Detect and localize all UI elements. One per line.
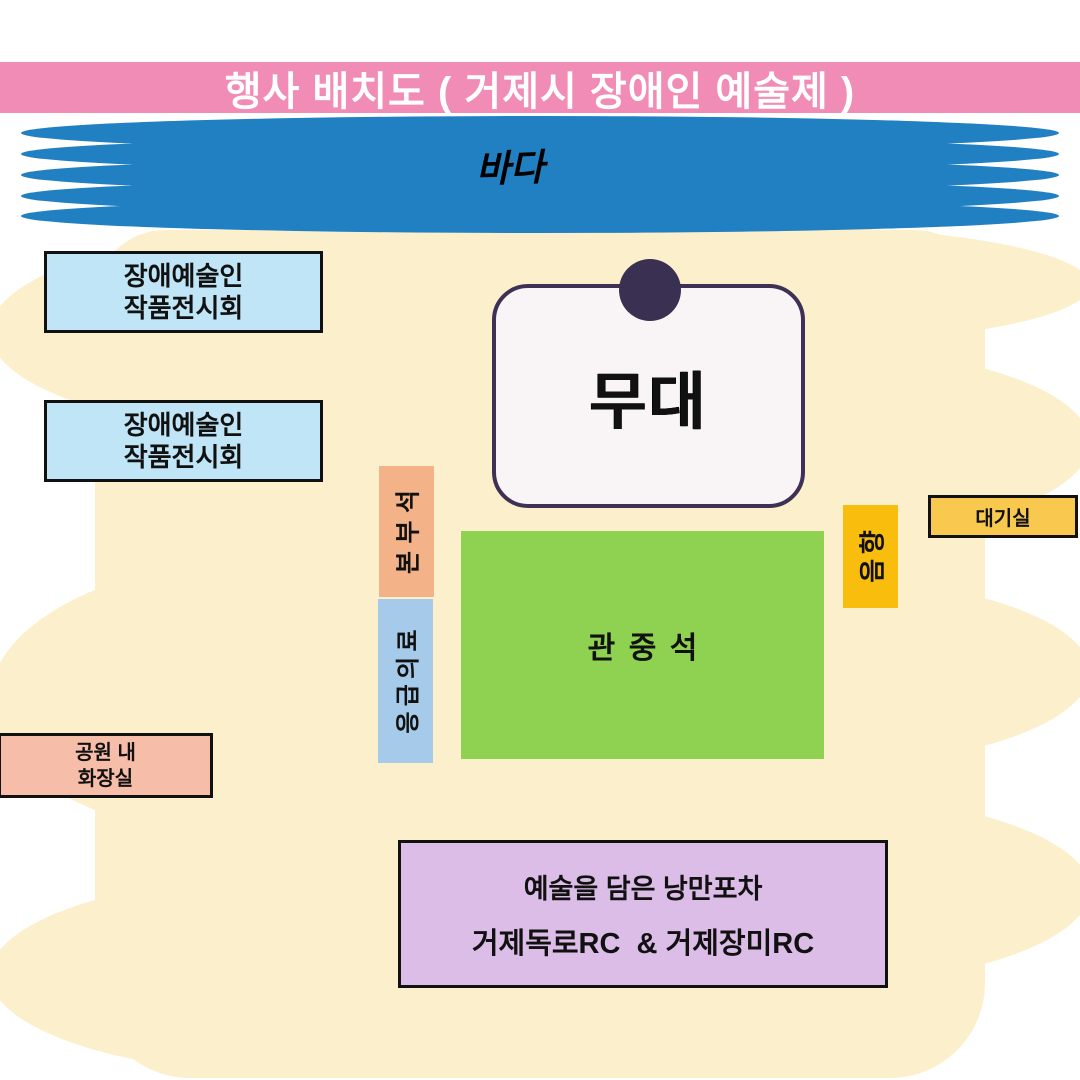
- zone-park-restroom: 공원 내 화장실: [0, 733, 213, 798]
- first-aid-label: 응급의료: [388, 624, 423, 739]
- poster-title: 행사 배치도 ( 거제시 장애인 예술제 ): [225, 59, 856, 117]
- zone-hq-seat: 본부석: [379, 466, 434, 597]
- event-layout-poster: 행사 배치도 ( 거제시 장애인 예술제 ) 바다 장애예술인 작품전시회 장애…: [0, 0, 1080, 1080]
- zone-sound-booth: 음향: [843, 505, 898, 608]
- pocha-title: 예술을 담은 낭만포차: [524, 867, 763, 906]
- title-banner: 행사 배치도 ( 거제시 장애인 예술제 ): [0, 62, 1080, 113]
- sea-wave-ellipse: [21, 199, 1059, 233]
- pocha-clubs: 거제독로RC & 거제장미RC: [472, 920, 814, 962]
- exhibition-label: 장애예술인 작품전시회: [124, 409, 244, 474]
- waiting-room-label: 대기실: [975, 502, 1030, 531]
- zone-exhibition-2: 장애예술인 작품전시회: [44, 400, 323, 482]
- exhibition-label: 장애예술인 작품전시회: [124, 260, 244, 325]
- restroom-label: 공원 내 화장실: [75, 740, 136, 792]
- audience-label: 관중석: [574, 623, 711, 667]
- stage-label: 무대: [589, 351, 707, 441]
- stage-pin-circle: [619, 259, 681, 321]
- zone-first-aid: 응급의료: [378, 599, 433, 763]
- zone-audience-seats: 관중석: [461, 531, 824, 759]
- zone-waiting-room: 대기실: [928, 495, 1078, 538]
- hq-label: 본부석: [389, 482, 425, 581]
- sound-label: 음향: [852, 526, 889, 588]
- sea-label: 바다: [429, 135, 591, 195]
- zone-exhibition-1: 장애예술인 작품전시회: [44, 251, 323, 333]
- zone-pocha: 예술을 담은 낭만포차 거제독로RC & 거제장미RC: [398, 840, 888, 988]
